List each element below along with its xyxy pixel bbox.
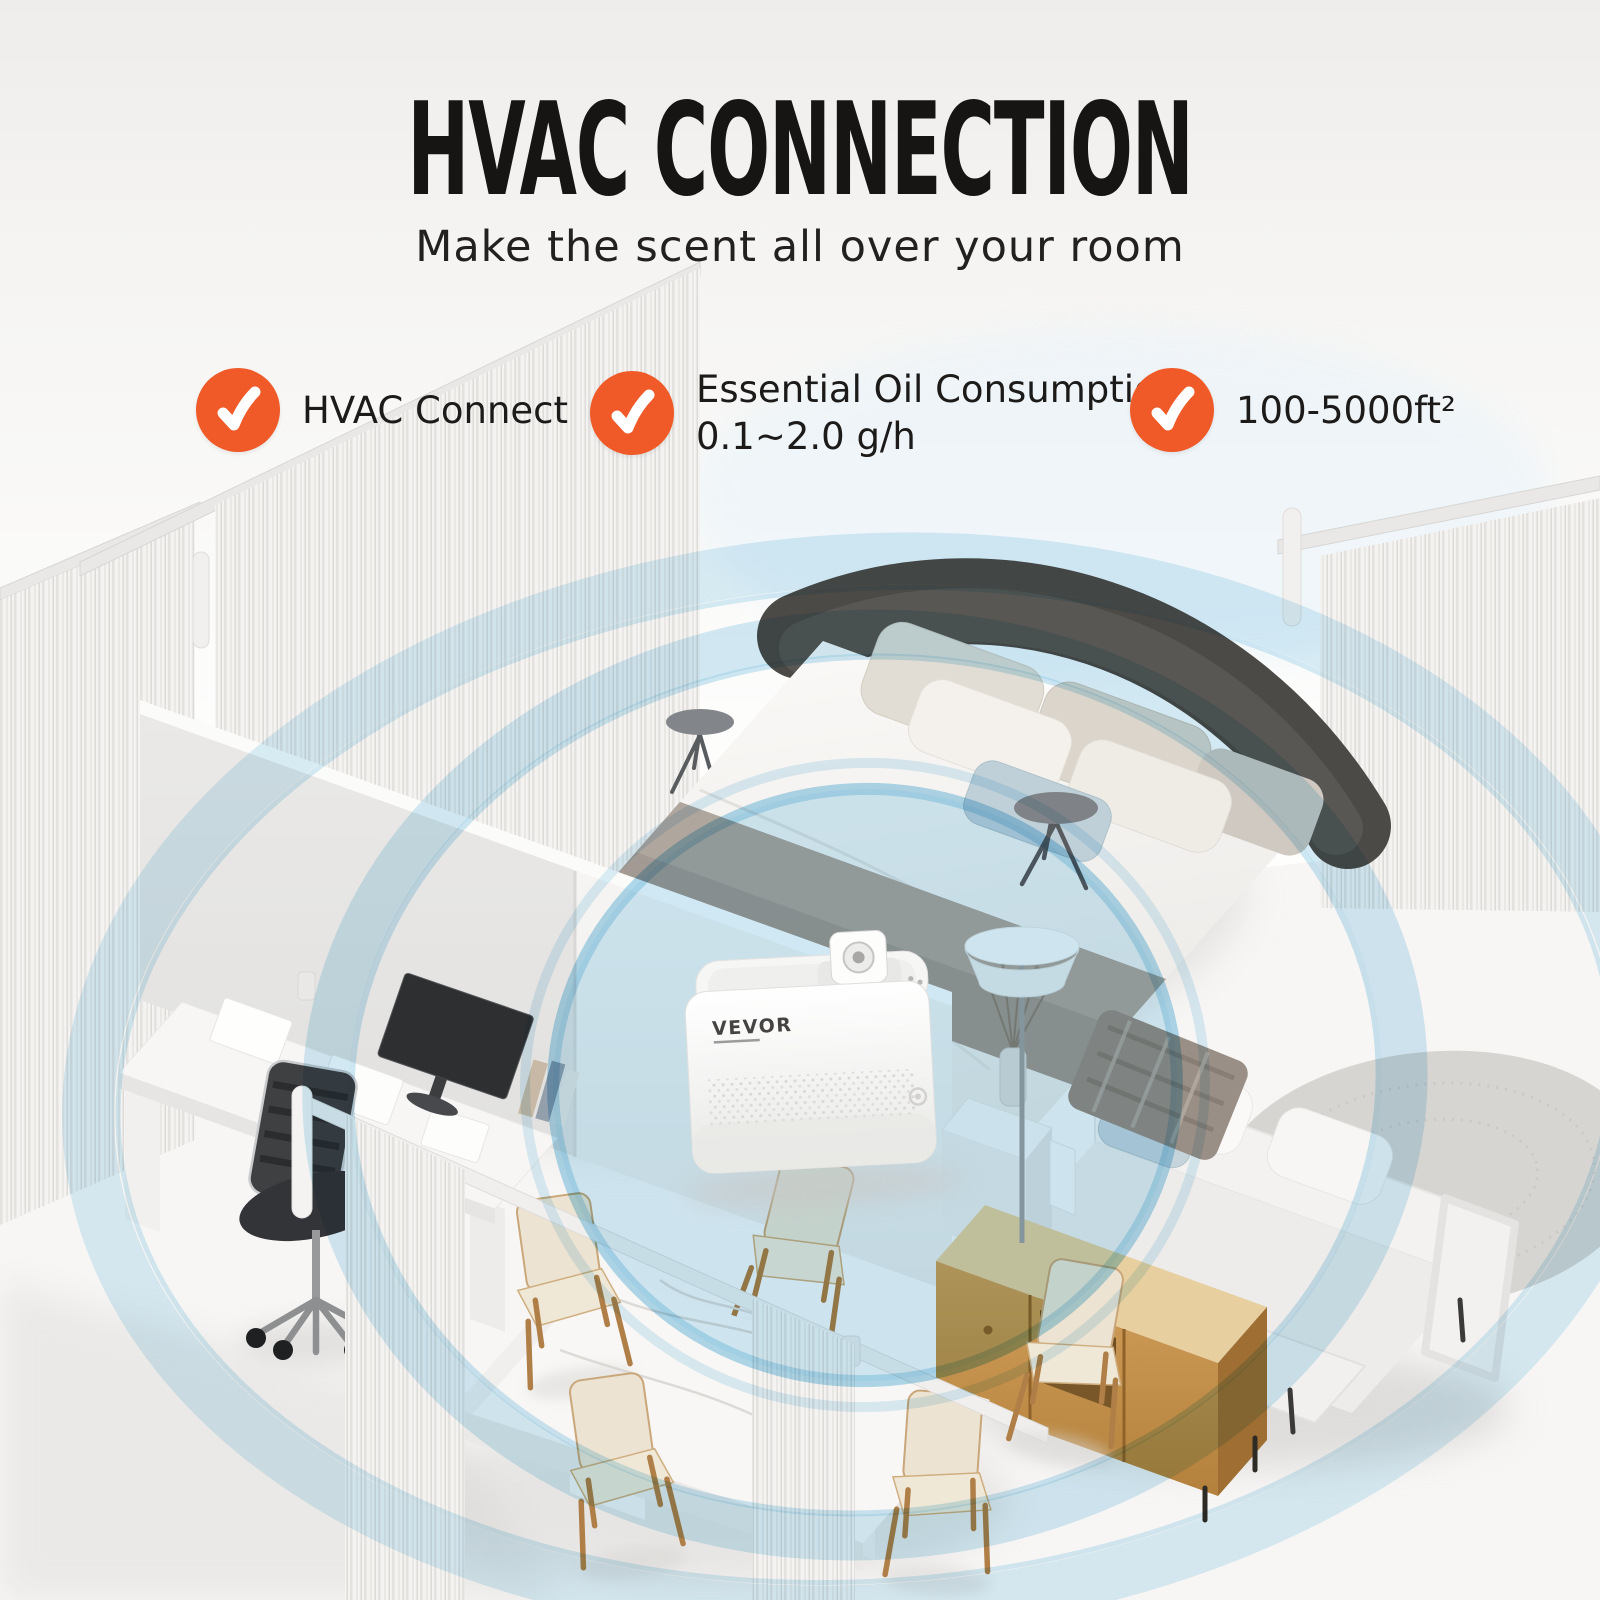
feature-label: 100-5000ft² bbox=[1236, 387, 1456, 434]
feature-hvac-connect: HVAC Connect bbox=[196, 368, 568, 452]
feature-line: 0.1~2.0 g/h bbox=[696, 413, 1180, 460]
diffuser-device: VEVOR bbox=[673, 927, 963, 1213]
check-icon bbox=[1130, 368, 1214, 452]
hvac-connection-banner: VEVOR HVAC CONNECTION Make the scent all… bbox=[0, 0, 1600, 1600]
feature-line: HVAC Connect bbox=[302, 387, 568, 434]
pen-cup bbox=[298, 972, 315, 1000]
checkmark-glyph bbox=[608, 389, 656, 437]
feature-line: 100-5000ft² bbox=[1236, 387, 1456, 434]
curtain-rail-finial bbox=[193, 552, 209, 648]
feature-label: Essential Oil Consumption 0.1~2.0 g/h bbox=[696, 366, 1180, 460]
check-icon bbox=[196, 368, 280, 452]
check-icon bbox=[590, 371, 674, 455]
device-brand-logo: VEVOR bbox=[712, 1014, 793, 1040]
page-title: HVAC CONNECTION bbox=[336, 76, 1264, 225]
feature-label: HVAC Connect bbox=[302, 387, 568, 434]
checkmark-glyph bbox=[214, 386, 262, 434]
checkmark-glyph bbox=[1148, 386, 1196, 434]
page-subtitle: Make the scent all over your room bbox=[0, 222, 1600, 272]
feature-coverage-area: 100-5000ft² bbox=[1130, 368, 1456, 452]
feature-oil-consumption: Essential Oil Consumption 0.1~2.0 g/h bbox=[590, 366, 1180, 460]
feature-line: Essential Oil Consumption bbox=[696, 366, 1180, 413]
